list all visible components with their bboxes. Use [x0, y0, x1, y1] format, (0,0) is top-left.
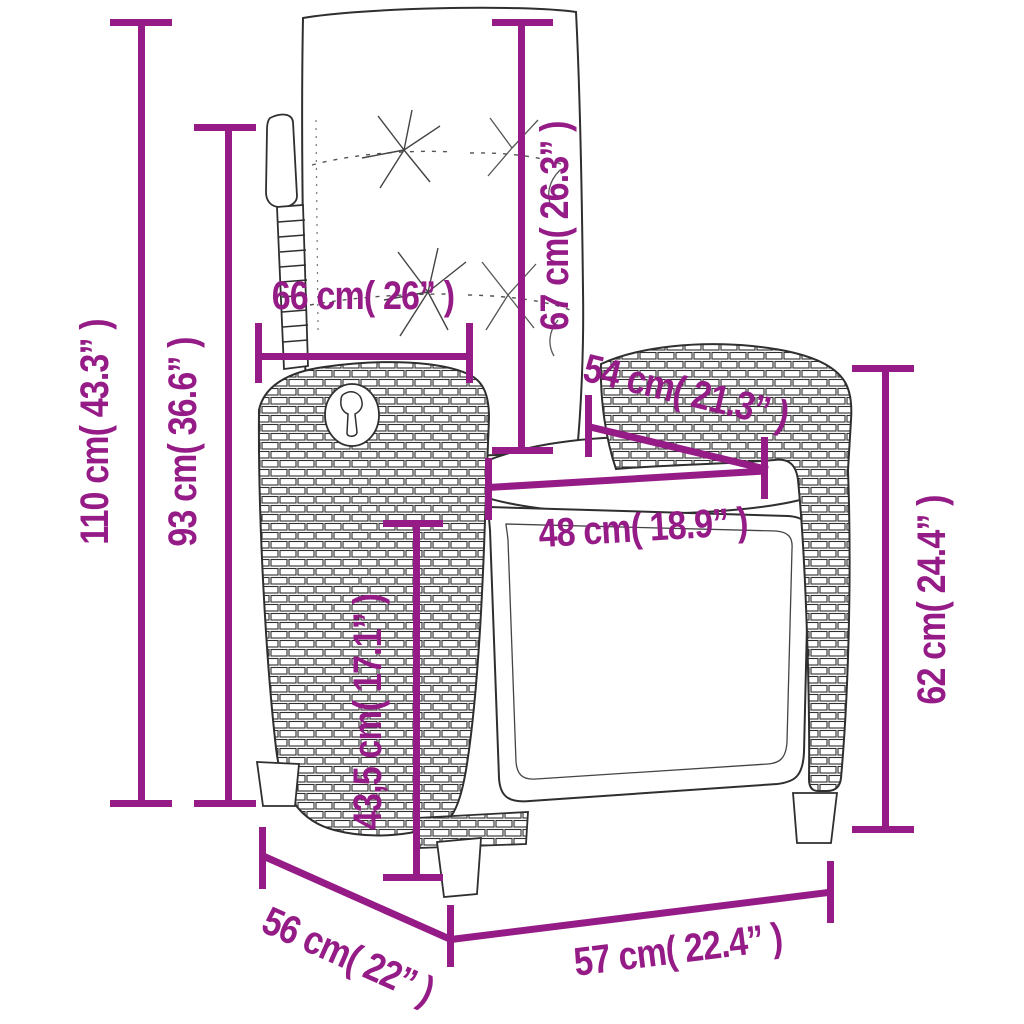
dimension-tick	[194, 800, 256, 807]
dimension-tick	[383, 874, 443, 881]
dimension-tick	[255, 323, 262, 383]
dimension-line	[138, 22, 145, 806]
dimension-tick	[110, 19, 172, 26]
dimension-tick	[110, 800, 172, 807]
dimension-line	[413, 523, 420, 880]
dimension-tick	[852, 365, 914, 372]
dimension-label: 110 cm( 43.3” )	[75, 319, 115, 544]
dimension-tick	[492, 447, 553, 454]
dimension-tick	[383, 520, 443, 527]
dimension-line	[518, 22, 525, 452]
garden-recliner-chair-drawing	[0, 0, 1024, 1024]
dimension-label: 67 cm( 26.3” )	[535, 121, 575, 330]
dimension-line	[882, 368, 889, 830]
dimension-tick	[492, 19, 553, 26]
dimension-tick	[827, 861, 834, 923]
dimension-tick	[852, 826, 914, 833]
footrest-front-panel	[489, 507, 810, 801]
dimension-label: 43,5 cm( 17.1” )	[348, 594, 388, 830]
dimension-tick	[466, 323, 473, 383]
dimension-label: 62 cm( 24.4” )	[912, 495, 952, 704]
dimension-label: 93 cm( 36.6” )	[163, 337, 203, 546]
dimension-line	[225, 127, 232, 806]
dimension-tick	[194, 124, 256, 131]
dimension-label: 66 cm( 26” )	[272, 276, 455, 316]
dimension-line	[259, 353, 472, 360]
product-dimension-diagram: 110 cm( 43.3” ) 93 cm( 36.6” ) 66 cm( 26…	[0, 0, 1024, 1024]
